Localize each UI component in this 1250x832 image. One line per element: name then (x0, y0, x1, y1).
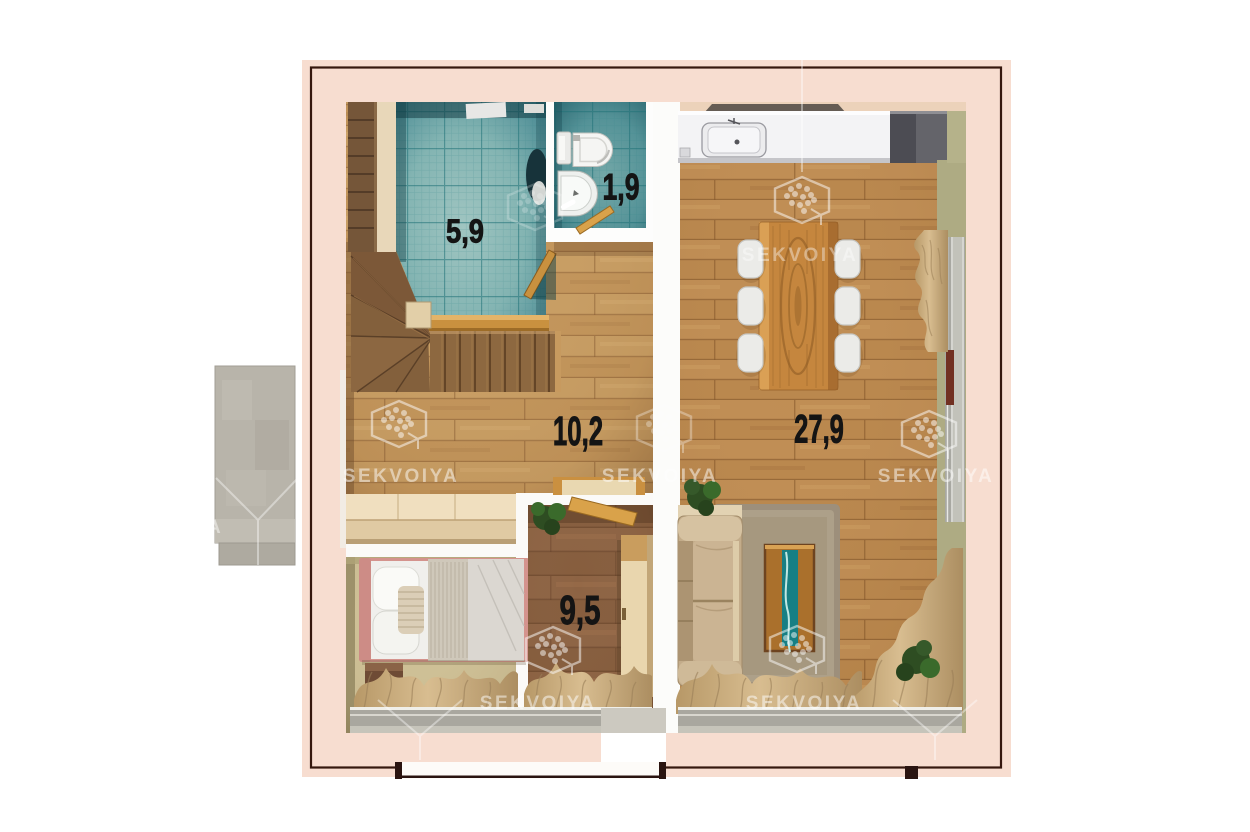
svg-text:SEKVOIYA: SEKVOIYA (602, 466, 718, 487)
svg-text:SEKVOIYA: SEKVOIYA (107, 517, 223, 538)
svg-text:1,9: 1,9 (602, 166, 639, 207)
svg-text:SEKVOIYA: SEKVOIYA (343, 466, 459, 487)
svg-text:SEKVOIYA: SEKVOIYA (746, 693, 862, 714)
svg-text:SEKVOIYA: SEKVOIYA (742, 245, 858, 266)
svg-text:27,9: 27,9 (794, 408, 844, 452)
svg-text:9,5: 9,5 (559, 587, 600, 633)
svg-text:SEKVOIYA: SEKVOIYA (878, 466, 994, 487)
svg-text:5,9: 5,9 (446, 214, 484, 250)
svg-text:10,2: 10,2 (553, 409, 603, 454)
svg-text:SEKVOIYA: SEKVOIYA (480, 693, 596, 714)
